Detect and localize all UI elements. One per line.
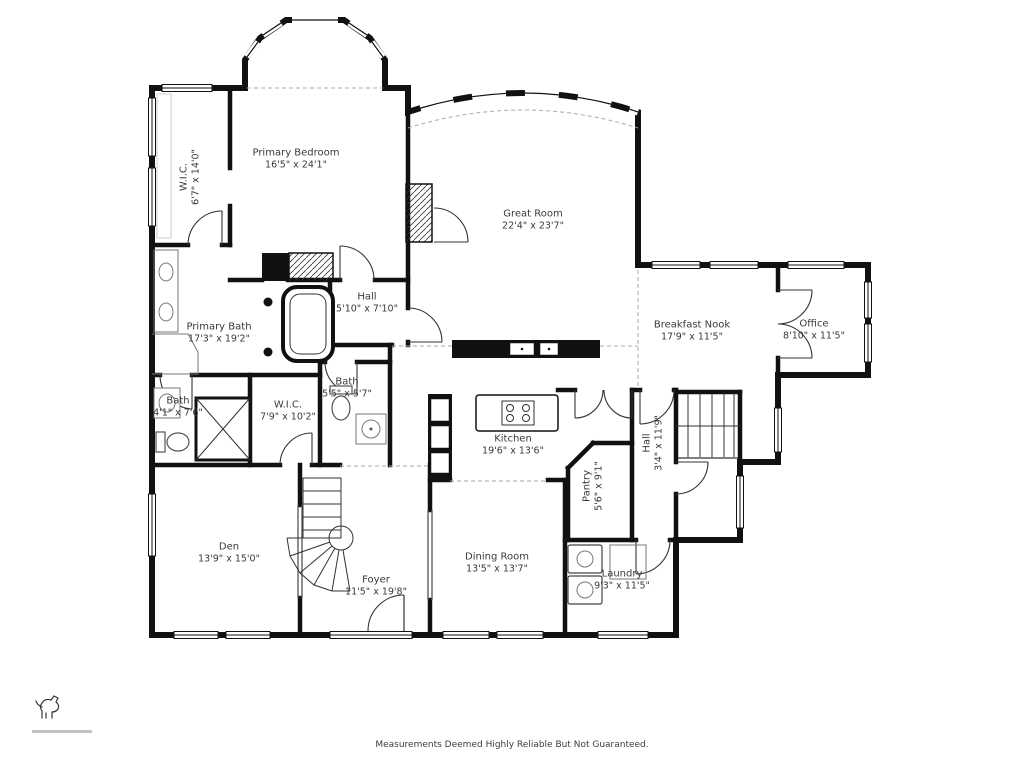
room-name: Great Room [503, 208, 563, 220]
kitchen-island [476, 395, 558, 431]
floorplan-drawing [0, 0, 1024, 767]
logo-caption-text [32, 730, 92, 733]
room-label-primary-bath: Primary Bath 17'3" x 19'2" [186, 321, 251, 344]
room-label-bath-hall: Bath 5'5" x 5'7" [322, 376, 372, 399]
room-dims: 13'9" x 15'0" [198, 553, 260, 564]
dog-logo-icon [30, 692, 74, 724]
room-name: Breakfast Nook [654, 319, 730, 331]
room-name: W.I.C. [178, 163, 190, 191]
room-name: Foyer [362, 574, 390, 586]
bathtub-icon [264, 287, 334, 361]
room-dims: 5'10" x 7'10" [336, 303, 398, 314]
kitchen-counter [452, 340, 600, 358]
disclaimer-text: Measurements Deemed Highly Reliable But … [0, 740, 1024, 750]
room-label-breakfast-nook: Breakfast Nook 17'9" x 11'5" [654, 319, 730, 342]
room-label-laundry: Laundry 9'3" x 11'5" [594, 568, 650, 591]
room-name: Hall [357, 291, 376, 303]
company-logo [30, 692, 102, 733]
room-label-kitchen: Kitchen 19'6" x 13'6" [482, 433, 544, 456]
room-name: Kitchen [494, 433, 532, 445]
room-dims: 13'5" x 13'7" [466, 563, 528, 574]
kitchen-appliance-wall [428, 394, 452, 478]
room-label-great-room: Great Room 22'4" x 23'7" [502, 208, 564, 231]
room-dims: 22'4" x 23'7" [502, 220, 564, 231]
room-name: Dining Room [465, 551, 529, 563]
room-name: Primary Bedroom [252, 147, 339, 159]
primary-bath-vanity [152, 250, 198, 374]
room-label-foyer: Foyer 11'5" x 19'8" [345, 574, 407, 597]
room-label-dining-room: Dining Room 13'5" x 13'7" [465, 551, 529, 574]
room-label-den: Den 13'9" x 15'0" [198, 541, 260, 564]
room-label-hall-rear: Hall 3'4" x 11'9" [641, 415, 664, 471]
room-name: Office [799, 318, 828, 330]
room-label-pantry: Pantry 5'6" x 9'1" [581, 461, 604, 511]
room-dims: 11'5" x 19'8" [345, 586, 407, 597]
room-dims: 8'10" x 11'5" [783, 330, 845, 341]
room-label-hall-upper: Hall 5'10" x 7'10" [336, 291, 398, 314]
linen-closet-x [196, 398, 250, 460]
curved-stairs [287, 478, 353, 591]
room-dims: 4'1" x 7'6" [153, 407, 203, 418]
room-label-primary-wic: W.I.C. 6'7" x 14'0" [178, 149, 201, 205]
bay-windows [247, 20, 383, 57]
room-name: W.I.C. [274, 399, 302, 411]
room-dims: 6'7" x 14'0" [190, 149, 201, 205]
room-dims: 3'4" x 11'9" [653, 415, 664, 471]
entry-door [330, 595, 412, 639]
room-name: Laundry [602, 568, 643, 580]
room-dims: 7'9" x 10'2" [260, 411, 316, 422]
room-label-primary-bedroom: Primary Bedroom 16'5" x 24'1" [252, 147, 339, 170]
room-dims: 9'3" x 11'5" [594, 580, 650, 591]
room-name: Bath [166, 395, 189, 407]
room-dims: 5'6" x 9'1" [593, 461, 604, 511]
room-name: Primary Bath [186, 321, 251, 333]
floorplan-page: Primary Bedroom 16'5" x 24'1" W.I.C. 6'7… [0, 0, 1024, 767]
room-name: Bath [335, 376, 358, 388]
room-name: Pantry [581, 470, 593, 502]
room-label-office: Office 8'10" x 11'5" [783, 318, 845, 341]
room-dims: 19'6" x 13'6" [482, 445, 544, 456]
room-label-wic-second: W.I.C. 7'9" x 10'2" [260, 399, 316, 422]
room-name: Den [219, 541, 239, 553]
straight-stairs [676, 393, 740, 458]
room-dims: 16'5" x 24'1" [265, 159, 327, 170]
room-dims: 5'5" x 5'7" [322, 388, 372, 399]
room-label-bath-left: Bath 4'1" x 7'6" [153, 395, 203, 418]
wic-rod [157, 94, 171, 238]
room-dims: 17'3" x 19'2" [188, 333, 250, 344]
room-name: Hall [641, 433, 653, 452]
room-dims: 17'9" x 11'5" [661, 331, 723, 342]
